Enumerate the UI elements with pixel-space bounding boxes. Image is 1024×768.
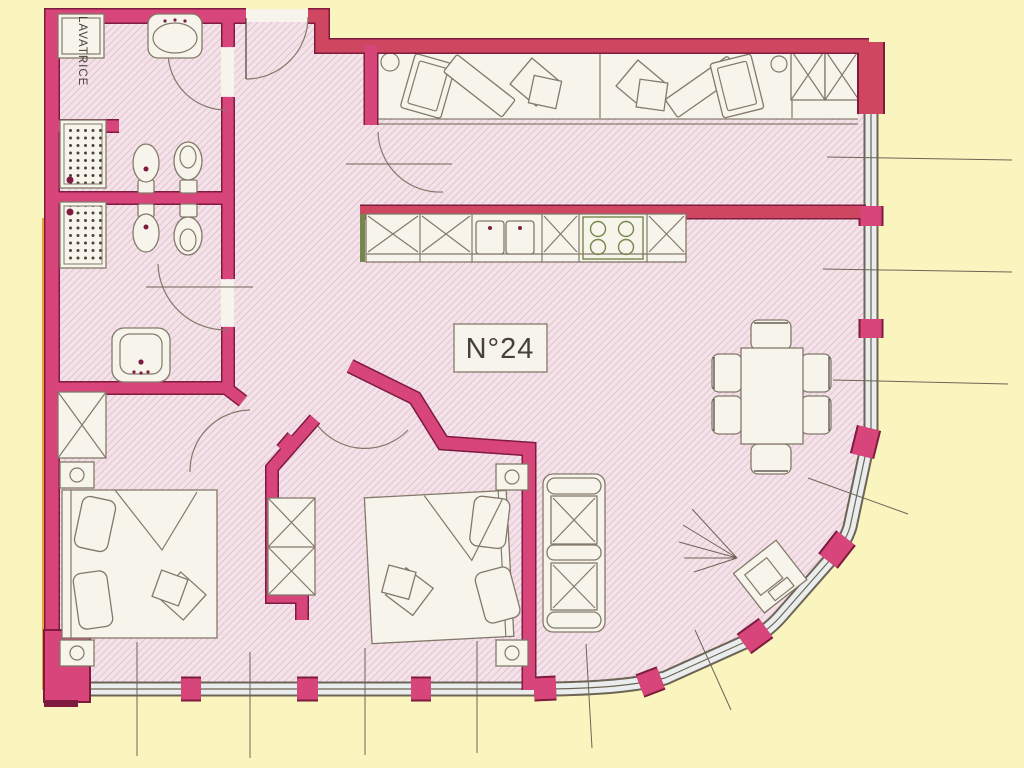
chair-icon	[751, 320, 791, 350]
shower-tray-icon	[60, 202, 106, 268]
floor-plan: LAVATRICE	[0, 0, 1024, 768]
bed-1	[62, 490, 217, 638]
chair-icon	[712, 354, 742, 392]
wardrobe-column	[268, 498, 315, 595]
balcony	[377, 49, 859, 124]
sofa	[543, 474, 605, 632]
chair-icon	[751, 444, 791, 474]
storage-box-icon	[825, 50, 859, 100]
chair-icon	[801, 354, 831, 392]
bed-2	[364, 490, 522, 644]
washbasin-icon	[112, 328, 170, 382]
apartment-number-label: N°24	[454, 324, 547, 372]
nightstand-icon	[496, 464, 528, 490]
dining-table	[741, 348, 803, 444]
shower-tray-icon	[60, 120, 106, 188]
nightstand-icon	[60, 640, 94, 666]
nightstand-icon	[496, 640, 528, 666]
chair-icon	[712, 396, 742, 434]
wardrobe-icon	[58, 392, 106, 458]
laundry-sink-icon	[148, 14, 202, 58]
pillow-icon	[469, 495, 511, 549]
nightstand-icon	[60, 462, 94, 488]
pillow-icon	[72, 570, 113, 630]
apartment-number-text: N°24	[466, 333, 535, 365]
chair-icon	[801, 396, 831, 434]
storage-box-icon	[791, 50, 825, 100]
kitchen-counter	[360, 214, 686, 262]
laundry-label: LAVATRICE	[76, 16, 88, 86]
